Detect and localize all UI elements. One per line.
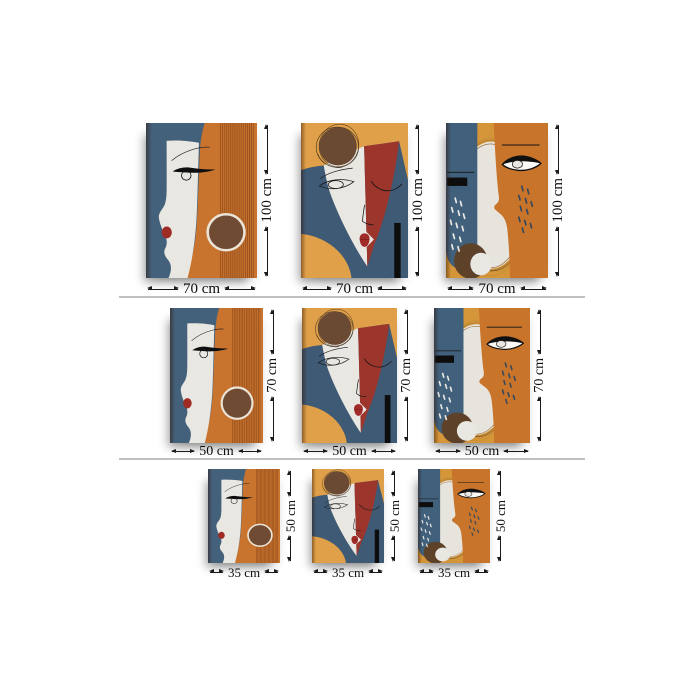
width-arrow-right (372, 451, 395, 452)
height-arrow-bottom (540, 397, 541, 441)
width-arrow-left (448, 289, 473, 290)
width-label: 35 cm (228, 566, 260, 579)
artwork-two-faces (418, 469, 490, 563)
height-arrow-bottom (394, 536, 395, 561)
row-divider (119, 458, 585, 460)
row-divider (119, 296, 585, 298)
height-arrow-top (418, 125, 419, 174)
canvas-print (312, 469, 384, 563)
artwork-two-faces (434, 308, 530, 443)
width-dimension: 70 cm (301, 278, 408, 298)
width-arrow-left (304, 451, 327, 452)
height-label: 70 cm (266, 358, 280, 393)
width-dimension: 70 cm (146, 278, 257, 298)
canvas-print (208, 469, 280, 563)
width-label: 50 cm (199, 445, 234, 459)
height-label: 50 cm (494, 500, 507, 532)
width-dimension: 50 cm (170, 443, 263, 458)
variant-100x70-artwork-3: 100 cm 70 cm (446, 123, 568, 298)
width-arrow-left (314, 572, 327, 573)
variant-70x50-artwork-3: 70 cm 50 cm (434, 308, 550, 458)
canvas-print (146, 123, 257, 278)
width-arrow-left (436, 451, 460, 452)
height-dimension: 50 cm (384, 469, 404, 563)
height-dimension: 70 cm (263, 308, 283, 443)
canvas-print (434, 308, 530, 443)
canvas-print (418, 469, 490, 563)
height-arrow-bottom (418, 227, 419, 276)
height-dimension: 70 cm (530, 308, 550, 443)
height-label: 100 cm (411, 178, 426, 223)
artwork-split-face (312, 469, 384, 563)
variant-100x70-artwork-2: 100 cm 70 cm (301, 123, 428, 298)
width-arrow-left (303, 289, 331, 290)
artwork-two-faces (446, 123, 548, 278)
variant-70x50-artwork-2: 70 cm 50 cm (302, 308, 417, 458)
width-arrow-right (369, 572, 382, 573)
height-dimension: 50 cm (280, 469, 300, 563)
height-arrow-top (540, 310, 541, 354)
height-arrow-bottom (500, 536, 501, 561)
height-arrow-top (273, 310, 274, 354)
width-label: 70 cm (336, 282, 373, 297)
variant-50x35-artwork-1: 50 cm 35 cm (208, 469, 300, 579)
height-arrow-top (500, 471, 501, 496)
width-arrow-left (210, 572, 223, 573)
height-arrow-top (394, 471, 395, 496)
height-label: 100 cm (260, 178, 275, 223)
width-arrow-right (239, 451, 261, 452)
canvas-print (302, 308, 397, 443)
width-dimension: 50 cm (434, 443, 530, 458)
height-arrow-top (407, 310, 408, 354)
height-arrow-bottom (267, 227, 268, 276)
artwork-profile-woman (208, 469, 280, 563)
height-label: 50 cm (284, 500, 297, 532)
height-arrow-bottom (558, 227, 559, 276)
artwork-profile-woman (146, 123, 257, 278)
width-arrow-left (172, 451, 194, 452)
variant-50x35-artwork-2: 50 cm 35 cm (312, 469, 404, 579)
variant-50x35-artwork-3: 50 cm 35 cm (418, 469, 510, 579)
width-arrow-right (225, 289, 255, 290)
width-arrow-right (265, 572, 278, 573)
variant-100x70-artwork-1: 100 cm 70 cm (146, 123, 277, 298)
width-label: 35 cm (332, 566, 364, 579)
width-arrow-left (148, 289, 178, 290)
height-dimension: 100 cm (408, 123, 428, 278)
height-arrow-top (267, 125, 268, 174)
height-dimension: 50 cm (490, 469, 510, 563)
height-dimension: 100 cm (257, 123, 277, 278)
width-arrow-right (378, 289, 406, 290)
width-arrow-right (521, 289, 546, 290)
height-arrow-top (290, 471, 291, 496)
artwork-split-face (302, 308, 397, 443)
artwork-split-face (301, 123, 408, 278)
height-dimension: 100 cm (548, 123, 568, 278)
width-arrow-left (420, 572, 433, 573)
width-dimension: 35 cm (418, 563, 490, 579)
canvas-print (446, 123, 548, 278)
height-arrow-bottom (407, 397, 408, 441)
variant-70x50-artwork-1: 70 cm 50 cm (170, 308, 283, 458)
canvas-print (170, 308, 263, 443)
height-dimension: 70 cm (397, 308, 417, 443)
width-label: 50 cm (332, 445, 367, 459)
width-label: 70 cm (183, 282, 220, 297)
width-dimension: 50 cm (302, 443, 397, 458)
height-arrow-bottom (290, 536, 291, 561)
width-dimension: 70 cm (446, 278, 548, 298)
width-label: 50 cm (465, 445, 500, 459)
height-label: 70 cm (533, 358, 547, 393)
height-label: 50 cm (388, 500, 401, 532)
height-label: 70 cm (400, 358, 414, 393)
artwork-profile-woman (170, 308, 263, 443)
width-arrow-right (504, 451, 528, 452)
height-arrow-top (558, 125, 559, 174)
canvas-print (301, 123, 408, 278)
width-label: 70 cm (478, 282, 515, 297)
width-label: 35 cm (438, 566, 470, 579)
height-label: 100 cm (551, 178, 566, 223)
width-dimension: 35 cm (208, 563, 280, 579)
height-arrow-bottom (273, 397, 274, 441)
width-dimension: 35 cm (312, 563, 384, 579)
width-arrow-right (475, 572, 488, 573)
